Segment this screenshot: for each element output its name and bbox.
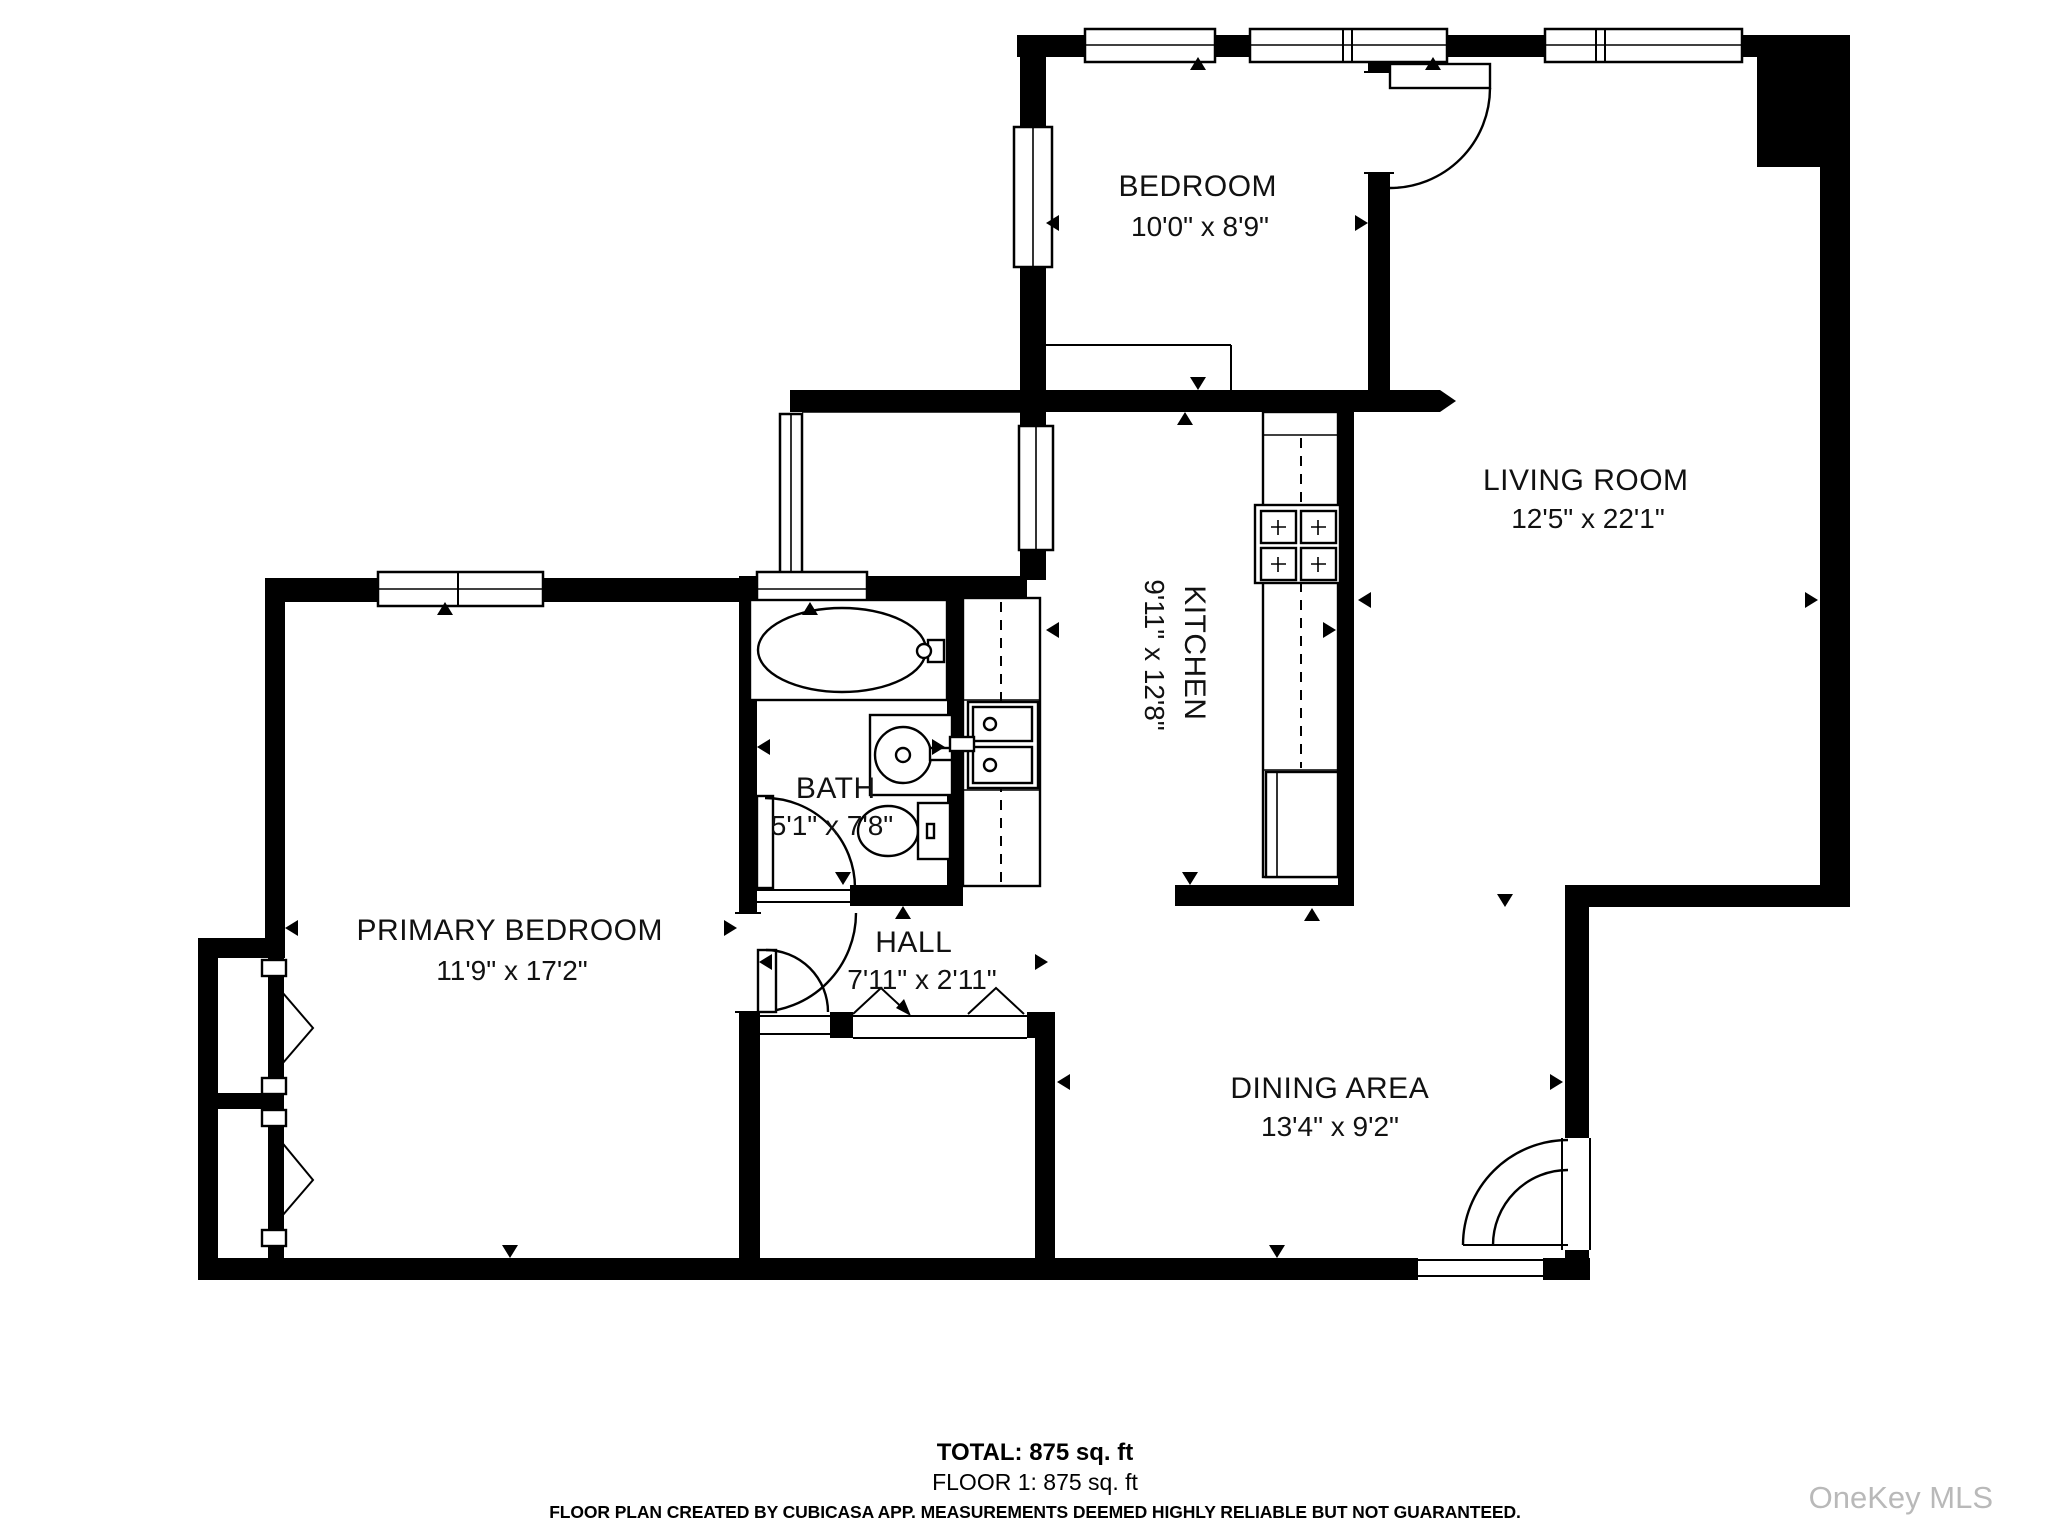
window <box>1545 29 1742 62</box>
area-summary: TOTAL: 875 sq. ft FLOOR 1: 875 sq. ft <box>515 1438 1555 1496</box>
bathtub-fixture <box>750 600 947 700</box>
watermark: OneKey MLS <box>1809 1480 1993 1516</box>
primary-bedroom-door <box>735 913 856 1012</box>
window <box>1019 426 1053 550</box>
floor-plan: BEDROOM 10'0" x 8'9" LIVING ROOM 12'5" x… <box>0 0 2048 1536</box>
kitchen-counter-left <box>950 598 1040 886</box>
room-label-kitchen: KITCHEN 9'11" x 12'8" <box>1139 579 1211 730</box>
room-label-hall: HALL 7'11" x 2'11" <box>847 926 996 995</box>
bedroom-door <box>1364 64 1490 188</box>
kitchen-counter-right <box>1255 412 1340 877</box>
refrigerator-fixture <box>1266 772 1338 877</box>
room-label-dining-area: DINING AREA 13'4" x 9'2" <box>1230 1072 1433 1142</box>
dining-sill <box>1418 1256 1543 1282</box>
stove-fixture <box>1255 505 1340 583</box>
floor-plan-svg: BEDROOM 10'0" x 8'9" LIVING ROOM 12'5" x… <box>0 0 2048 1536</box>
total-area: TOTAL: 875 sq. ft <box>515 1438 1555 1468</box>
bathroom-sink-fixture <box>870 715 952 795</box>
window <box>1014 127 1052 267</box>
window <box>378 572 543 606</box>
room-label-bath: BATH 5'1" x 7'8" <box>771 772 893 841</box>
window <box>780 414 802 576</box>
window <box>1085 29 1215 62</box>
room-label-living-room: LIVING ROOM 12'5" x 22'1" <box>1483 464 1693 534</box>
window <box>1250 29 1447 62</box>
room-label-primary-bedroom: PRIMARY BEDROOM 11'9" x 17'2" <box>357 914 668 986</box>
dining-door <box>1463 1138 1594 1250</box>
hall-closet-bifold-doors <box>853 988 1027 1038</box>
bedroom-recess-line <box>1046 345 1231 390</box>
disclaimer-text: FLOOR PLAN CREATED BY CUBICASA APP. MEAS… <box>315 1502 1755 1523</box>
room-label-bedroom: BEDROOM 10'0" x 8'9" <box>1119 170 1282 242</box>
floor-area: FLOOR 1: 875 sq. ft <box>515 1468 1555 1496</box>
